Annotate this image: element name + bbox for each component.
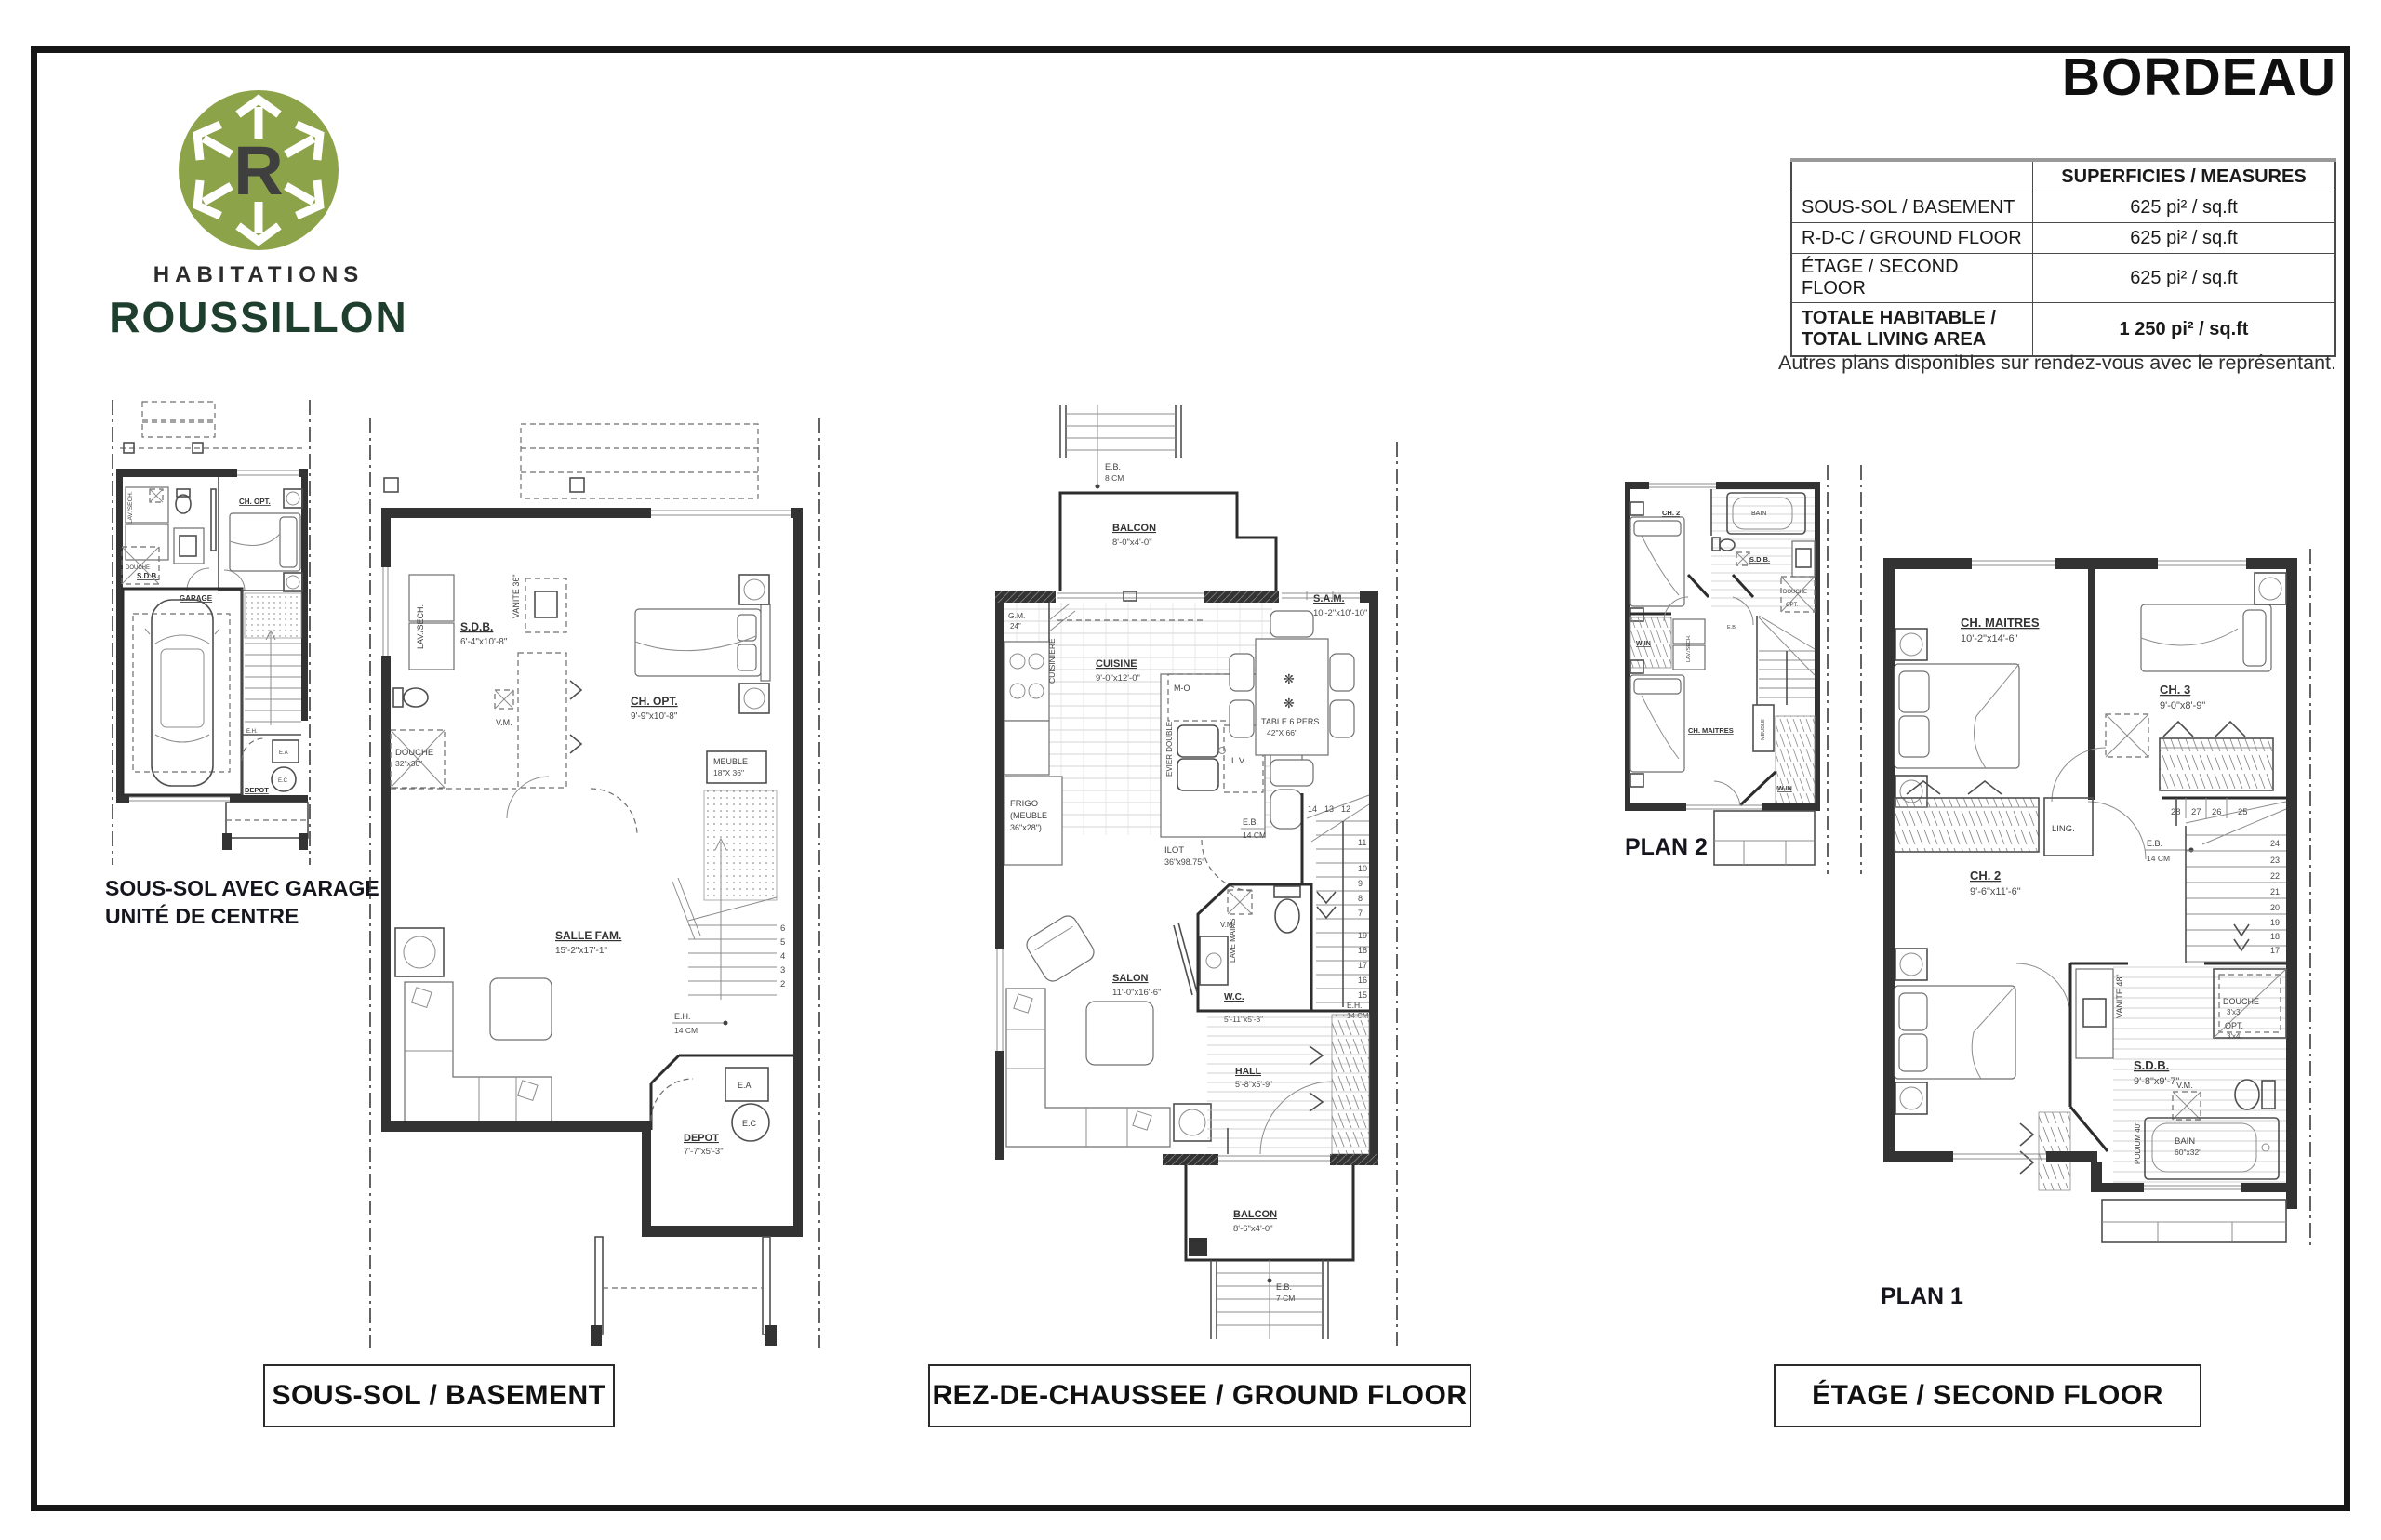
stair-number: 17 <box>2270 946 2280 955</box>
measures-header: SUPERFICIES / MEASURES <box>2033 160 2336 192</box>
furniture-meuble: MEUBLE 18"X 36" <box>707 751 766 783</box>
sam-dim: 10'-2"x10'-10" <box>1313 608 1367 618</box>
ottoman <box>1086 1002 1153 1065</box>
table-dim: 42"X 66" <box>1267 728 1297 737</box>
frigo-label3: 36"x28") <box>1010 823 1042 832</box>
stair-number: 18 <box>1358 946 1367 955</box>
speaker <box>1895 1082 1927 1114</box>
stair-number: 15 <box>1358 990 1367 1000</box>
entry-well <box>591 1237 777 1346</box>
logo-habitations: HABITATIONS <box>112 262 406 288</box>
ec-label: E.C <box>278 778 288 784</box>
douche-label: DOUCHE <box>2223 997 2259 1006</box>
depot-label: DEPOT <box>684 1133 719 1144</box>
variant-line2: UNITÉ DE CENTRE <box>105 904 299 928</box>
speaker <box>1630 774 1643 787</box>
porch-outline <box>384 424 758 498</box>
vanity <box>2076 969 2113 1058</box>
toilet <box>176 489 191 513</box>
lave-mains-label: LAVE MAINS <box>1229 919 1237 962</box>
basement-main-plan: LAV./SECH. VANITE 36" V.M. S.D.B. 6'-4"x… <box>367 418 832 1348</box>
measures-table: SUPERFICIES / MEASURES SOUS-SOL / BASEME… <box>1790 158 2336 357</box>
frigo-label1: FRIGO <box>1010 799 1038 809</box>
bain-label: BAIN <box>2175 1136 2195 1147</box>
douche-label: DOUCHE <box>126 565 150 571</box>
eb-label: E.B. <box>1243 817 1258 827</box>
meuble-label: MEUBLE <box>1761 719 1766 740</box>
depot-label: DEPOT <box>245 786 269 794</box>
total-label-line1: TOTALE HABITABLE / <box>1802 308 1996 328</box>
stair-number: 21 <box>2270 887 2280 896</box>
eb-label: E.B. <box>1276 1282 1292 1292</box>
stair-number: 24 <box>2270 839 2280 848</box>
plant-icon: ❋ <box>1284 696 1295 710</box>
speaker <box>2255 573 2286 604</box>
island: M-O L.V. <box>1161 674 1265 837</box>
depot-room: E.A E.C DEPOT 7'-7"x5'-3" <box>651 1055 793 1157</box>
vanity <box>525 578 566 632</box>
stairs <box>245 593 301 725</box>
hall: HALL 5'-8"x5'-9" <box>1198 1011 1369 1154</box>
door-arc <box>2088 802 2146 859</box>
ec-label: E.C <box>742 1119 757 1128</box>
bed <box>1895 664 2019 768</box>
stove <box>1004 642 1049 721</box>
bed <box>1630 675 1684 772</box>
bed <box>635 604 770 681</box>
balcon-dim: 8'-0"x4'-0" <box>1112 538 1152 548</box>
stair-number: 7 <box>1358 909 1363 918</box>
ch-opt-label: CH. OPT. <box>239 498 271 506</box>
garage-room: GARAGE <box>123 589 242 795</box>
roussillon-logo-icon: R <box>177 88 340 252</box>
lav-sech-label: LAV./SECH. <box>127 491 134 524</box>
ch3-label: CH. 3 <box>2160 683 2190 697</box>
door-arc <box>591 789 637 835</box>
wc-label: W.C. <box>1224 992 1244 1002</box>
speaker <box>395 928 444 976</box>
sdb-label: S.D.B. <box>1749 555 1770 564</box>
ch-opt-dim: 9'-9"x10'-8" <box>631 711 678 722</box>
eh-label: E.H. <box>1347 1001 1363 1010</box>
bain-dim: 60"x32" <box>2175 1148 2201 1157</box>
ilot-label: ILOT <box>1164 845 1184 856</box>
total-label: TOTALE HABITABLE / TOTAL LIVING AREA <box>1791 303 2033 357</box>
depot-dim: 7'-7"x5'-3" <box>684 1147 724 1157</box>
logo-roussillon: ROUSSILLON <box>88 292 429 342</box>
microwave-label: M-O <box>1174 684 1190 693</box>
counter <box>1004 721 1049 775</box>
ottoman <box>490 978 552 1040</box>
door-arc <box>2016 963 2070 1017</box>
row-label: SOUS-SOL / BASEMENT <box>1791 192 2033 223</box>
lower-roof <box>2102 1200 2286 1242</box>
cuisine-dim: 9'-0"x12'-0" <box>1096 673 1140 684</box>
speaker <box>284 489 302 508</box>
page-title: BORDEAU <box>1581 46 2336 108</box>
opt-label: OPT. <box>1786 603 1799 608</box>
stair-number: 4 <box>780 951 785 962</box>
vm-label: V.M. <box>2176 1081 2193 1090</box>
stair-number: 3 <box>780 965 785 976</box>
opt-dim: 3'x4' <box>2227 1032 2241 1041</box>
ilot-dim: 36"x98.75" <box>1164 857 1204 867</box>
opt-label: OPT. <box>2225 1021 2243 1030</box>
stair-number: 13 <box>1324 804 1334 814</box>
driveway-outline <box>120 402 304 453</box>
second-floor-plan2: CH. 2 BAIN S.D.B. DOUCHE OPT. W-IN LAV./… <box>1623 465 1867 874</box>
stair-number: 26 <box>2212 807 2222 817</box>
douche-label: DOUCHE <box>1783 590 1807 595</box>
row-value: 625 pi² / sq.ft <box>2033 223 2336 254</box>
speaker <box>1895 949 1927 980</box>
stair-number: 8 <box>1358 894 1363 903</box>
variant-line1: SOUS-SOL AVEC GARAGE <box>105 876 379 900</box>
stair-number: 11 <box>1358 838 1366 847</box>
basement-garage-plan: LAV./SECH. S.D.B. DOUCHE CH. OPT. GARAGE <box>88 400 330 865</box>
eh-label: E.H. <box>246 729 258 735</box>
empty-header-cell <box>1791 160 2033 192</box>
plan2-label: PLAN 2 <box>1625 834 1708 861</box>
stair-number: 19 <box>1358 931 1367 940</box>
eb-label: E.B. <box>1727 625 1737 631</box>
stair-number: 16 <box>1358 976 1367 985</box>
table-row: R-D-C / GROUND FLOOR 625 pi² / sq.ft <box>1791 223 2335 254</box>
bed <box>1895 986 2015 1079</box>
row-label: ÉTAGE / SECOND FLOOR <box>1791 254 2033 303</box>
table-total-row: TOTALE HABITABLE / TOTAL LIVING AREA 1 2… <box>1791 303 2335 357</box>
hall-dim: 5'-8"x5'-9" <box>1235 1080 1272 1089</box>
sdb-dim: 9'-8"x9'-7" <box>2134 1076 2179 1087</box>
ch-maitres-label: CH. MAITRES <box>1688 726 1734 735</box>
salon-dim: 11'-0"x16'-6" <box>1112 988 1161 998</box>
ch-maitres-label: CH. MAITRES <box>1961 616 2040 630</box>
vanity <box>174 528 204 564</box>
stair-number: 12 <box>1341 804 1350 814</box>
speaker <box>1174 1104 1211 1141</box>
ch2-dim: 9'-6"x11'-6" <box>1970 886 2021 897</box>
garage-label: GARAGE <box>180 594 213 603</box>
sdb-label: S.D.B. <box>2134 1058 2169 1072</box>
landing-tiles <box>704 790 777 900</box>
stair-number: 28 <box>2171 807 2181 817</box>
wc-room: V.M. LAVE MAINS W.C. <box>1198 884 1311 1011</box>
douche-dim: 3'x3' <box>2227 1008 2241 1016</box>
speaker <box>284 573 302 591</box>
exterior-stairs-bottom: E.B. 7 CM <box>1211 1260 1328 1339</box>
lav-sech-label: LAV./SECH. <box>416 604 425 649</box>
stair-number: 5 <box>780 937 785 948</box>
property-lines <box>1828 465 1861 874</box>
balcon-dim: 8'-6"x4'-0" <box>1233 1224 1273 1234</box>
stairs <box>1757 616 1815 705</box>
availability-note: Autres plans disponibles sur rendez-vous… <box>1581 352 2336 375</box>
evier-label: EVIER DOUBLE <box>1165 722 1174 777</box>
eb-dim: 14 CM <box>1243 830 1266 840</box>
stair-number: 25 <box>2238 807 2248 817</box>
sam-label: S.A.M. <box>1313 593 1345 604</box>
salle-fam-label: SALLE FAM. <box>555 929 621 942</box>
gm-label: G.M. <box>1008 611 1025 620</box>
balcony-top: BALCON 8'-0"x4'-0" <box>1060 493 1276 591</box>
lv-label: L.V. <box>1231 756 1246 766</box>
rear-landing <box>1714 811 1815 865</box>
bain-label: BAIN <box>1751 511 1766 517</box>
douche-dim: 32"x30" <box>395 759 422 768</box>
stair-number: 20 <box>2270 903 2280 912</box>
bed <box>230 513 300 571</box>
speaker <box>739 684 769 713</box>
caption-ground-floor: REZ-DE-CHAUSSEE / GROUND FLOOR <box>928 1364 1471 1427</box>
stair-number: 14 <box>1308 804 1317 814</box>
door-arc <box>507 777 549 818</box>
total-label-line2: TOTAL LIVING AREA <box>1802 329 1986 350</box>
door-arc <box>187 568 209 591</box>
closet-ch2 <box>1895 781 2039 852</box>
plan1-label: PLAN 1 <box>1881 1283 1963 1310</box>
armchair <box>1023 912 1097 985</box>
hall-label: HALL <box>1235 1066 1262 1077</box>
closet <box>518 653 581 788</box>
balcon-label: BALCON <box>1233 1209 1277 1220</box>
ea-label: E.A <box>738 1081 752 1090</box>
ch-maitres-dim: 10'-2"x14'-6" <box>1961 633 2018 644</box>
coat-closet <box>1332 1015 1369 1154</box>
lav-sech-label: LAV./SECH. <box>1686 634 1692 662</box>
ea-label: E.A <box>279 750 288 756</box>
eh-marker: E.H. 14 CM <box>672 1012 728 1035</box>
eh-label: E.H. <box>674 1012 691 1021</box>
table-row: ÉTAGE / SECOND FLOOR 625 pi² / sq.ft <box>1791 254 2335 303</box>
stair-number: 22 <box>2270 871 2280 881</box>
ground-floor-plan: E.B. 8 CM BALCON 8'-0"x4'-0" G.M. 24" CU… <box>995 405 1414 1346</box>
linen-room: LING. <box>2044 798 2093 856</box>
car <box>145 600 219 786</box>
vanite-label: VANITE 48" <box>2115 974 2124 1018</box>
balcony-bottom: BALCON 8'-6"x4'-0" <box>1186 1165 1353 1260</box>
stair-number: 6 <box>780 923 785 934</box>
win-label: W-IN <box>1636 641 1651 647</box>
vanite-label: VANITE 36" <box>512 574 521 618</box>
stair-number: 19 <box>2270 918 2280 927</box>
vent-icon <box>495 690 513 709</box>
vanity <box>1792 541 1815 577</box>
salon-label: SALON <box>1112 973 1149 984</box>
sdb-dim: 6'-4"x10'-8" <box>460 637 508 647</box>
furniture-meuble: MEUBLE <box>1753 705 1774 751</box>
row-value: 625 pi² / sq.ft <box>2033 254 2336 303</box>
ch-opt-label: CH. OPT. <box>631 695 678 708</box>
caption-second-floor: ÉTAGE / SECOND FLOOR <box>1774 1364 2201 1427</box>
win-label: W-IN <box>1777 786 1792 792</box>
toilet <box>393 688 428 707</box>
speaker <box>1895 629 1927 660</box>
stair-number: 9 <box>1358 879 1363 888</box>
meuble-label: MEUBLE <box>713 757 748 766</box>
stair-number: 17 <box>1358 961 1367 970</box>
sdb-label: S.D.B. <box>460 620 493 633</box>
closet-ch3 <box>2160 722 2273 790</box>
logo-letter: R <box>233 132 283 209</box>
ch3-dim: 9'-0"x8'-9" <box>2160 700 2205 711</box>
cuisiniere-label: CUISINIERE <box>1047 638 1057 684</box>
speaker <box>1630 502 1643 515</box>
front-entry <box>116 795 308 850</box>
bed <box>1630 517 1684 606</box>
balcon-label: BALCON <box>1112 523 1156 534</box>
gm-dim: 24" <box>1010 622 1021 631</box>
caption-basement: SOUS-SOL / BASEMENT <box>263 1364 615 1427</box>
meuble-dim: 18"X 36" <box>713 768 744 777</box>
stair-number: 2 <box>780 979 785 989</box>
ch2-label: CH. 2 <box>1662 509 1680 517</box>
second-floor-plan1: CH. MAITRES 10'-2"x14'-6" CH. 3 9'-0"x8'… <box>1879 549 2327 1248</box>
bed <box>2141 604 2271 671</box>
table-row: SOUS-SOL / BASEMENT 625 pi² / sq.ft <box>1791 192 2335 223</box>
basement-variant-caption: SOUS-SOL AVEC GARAGE UNITÉ DE CENTRE <box>105 874 379 930</box>
speaker <box>739 575 769 604</box>
cuisine-label: CUISINE <box>1096 658 1137 670</box>
total-value: 1 250 pi² / sq.ft <box>2033 303 2336 357</box>
plant-icon: ❋ <box>1284 671 1295 686</box>
stair-number: 10 <box>1358 864 1367 873</box>
vm-label: V.M. <box>496 718 512 727</box>
bottom-wall <box>1625 803 1820 811</box>
eb-dim: 8 CM <box>1105 473 1124 483</box>
stair-number: 23 <box>2270 856 2280 865</box>
shelf <box>211 489 216 551</box>
linen-closet <box>2106 714 2148 757</box>
stair-number: 27 <box>2191 807 2201 817</box>
eb-label: E.B. <box>2147 839 2162 848</box>
ch2-label: CH. 2 <box>1970 869 2001 883</box>
table-header-row: SUPERFICIES / MEASURES <box>1791 160 2335 192</box>
frigo-label2: (MEUBLE <box>1010 811 1047 820</box>
douche-label: DOUCHE <box>395 748 433 758</box>
row-label: R-D-C / GROUND FLOOR <box>1791 223 2033 254</box>
eh-dim: 14 CM <box>674 1026 698 1035</box>
stairs: 28 27 26 25 24 23 22 21 20 19 18 17 <box>2162 798 2286 963</box>
eb-dim: 14 CM <box>2147 854 2170 863</box>
eb-dim: 7 CM <box>1276 1294 1295 1303</box>
tv <box>1174 923 1197 995</box>
door-arc <box>2052 748 2106 802</box>
ling-label: LING. <box>2052 824 2075 834</box>
salle-fam-dim: 15'-2"x17'-1" <box>555 946 607 956</box>
eb-label: E.B. <box>1105 462 1121 471</box>
podium-label: PODIUM 40" <box>2134 1122 2142 1164</box>
stair-number: 18 <box>2270 932 2280 941</box>
row-value: 625 pi² / sq.ft <box>2033 192 2336 223</box>
fridge: FRIGO (MEUBLE 36"x28") <box>1004 777 1062 865</box>
table-label: TABLE 6 PERS. <box>1261 717 1322 726</box>
